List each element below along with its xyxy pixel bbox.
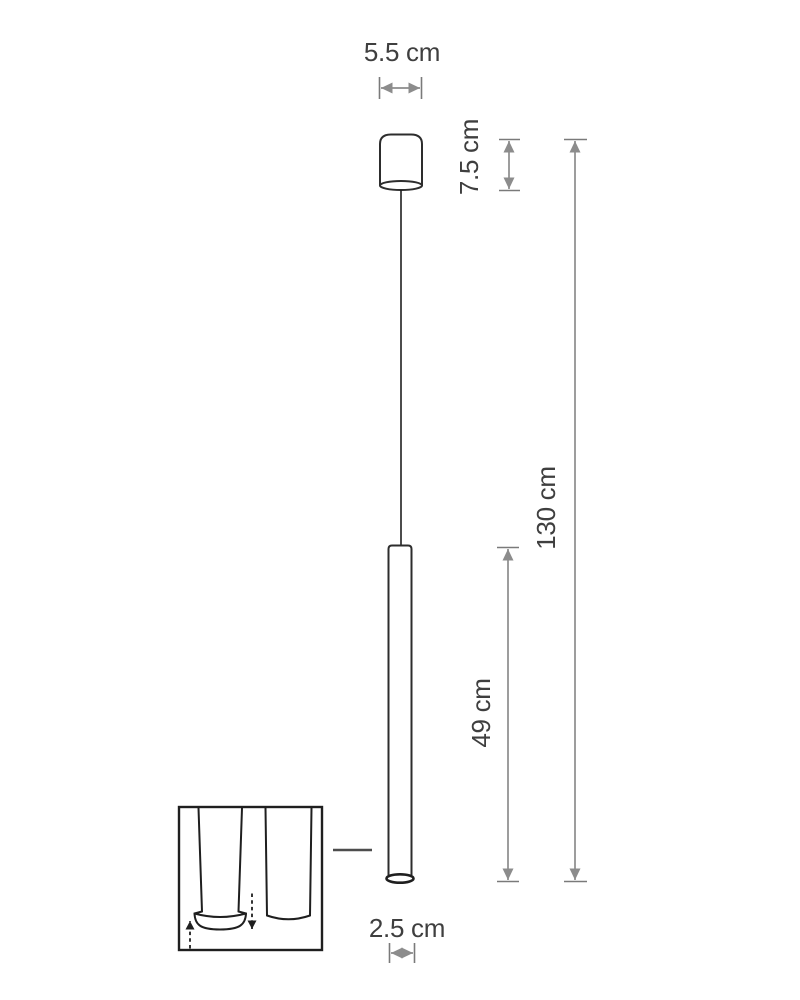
- dim-canopy-width: 5.5 cm: [364, 37, 440, 99]
- pendant-lamp-dimension-diagram: 5.5 cm 7.5 cm 130 cm 49 cm 2: [0, 0, 800, 1000]
- label-tube-length: 49 cm: [466, 678, 496, 747]
- dim-canopy-height: 7.5 cm: [454, 119, 520, 195]
- inset-detail: [179, 807, 322, 950]
- canopy-bottom-ellipse: [380, 181, 422, 190]
- diagram-page: 5.5 cm 7.5 cm 130 cm 49 cm 2: [0, 0, 800, 1000]
- canopy-outline: [380, 135, 422, 186]
- tube-bottom-ellipse: [387, 874, 414, 882]
- tube-outline: [389, 546, 412, 878]
- dim-tube-diameter: 2.5 cm: [369, 913, 445, 963]
- lamp-drawing: [380, 135, 422, 883]
- dim-total-height: 130 cm: [531, 140, 587, 882]
- label-tube-diameter: 2.5 cm: [369, 913, 445, 943]
- label-canopy-height: 7.5 cm: [454, 119, 484, 195]
- label-total-height: 130 cm: [531, 466, 561, 549]
- label-canopy-width: 5.5 cm: [364, 37, 440, 67]
- dim-tube-length: 49 cm: [466, 548, 519, 882]
